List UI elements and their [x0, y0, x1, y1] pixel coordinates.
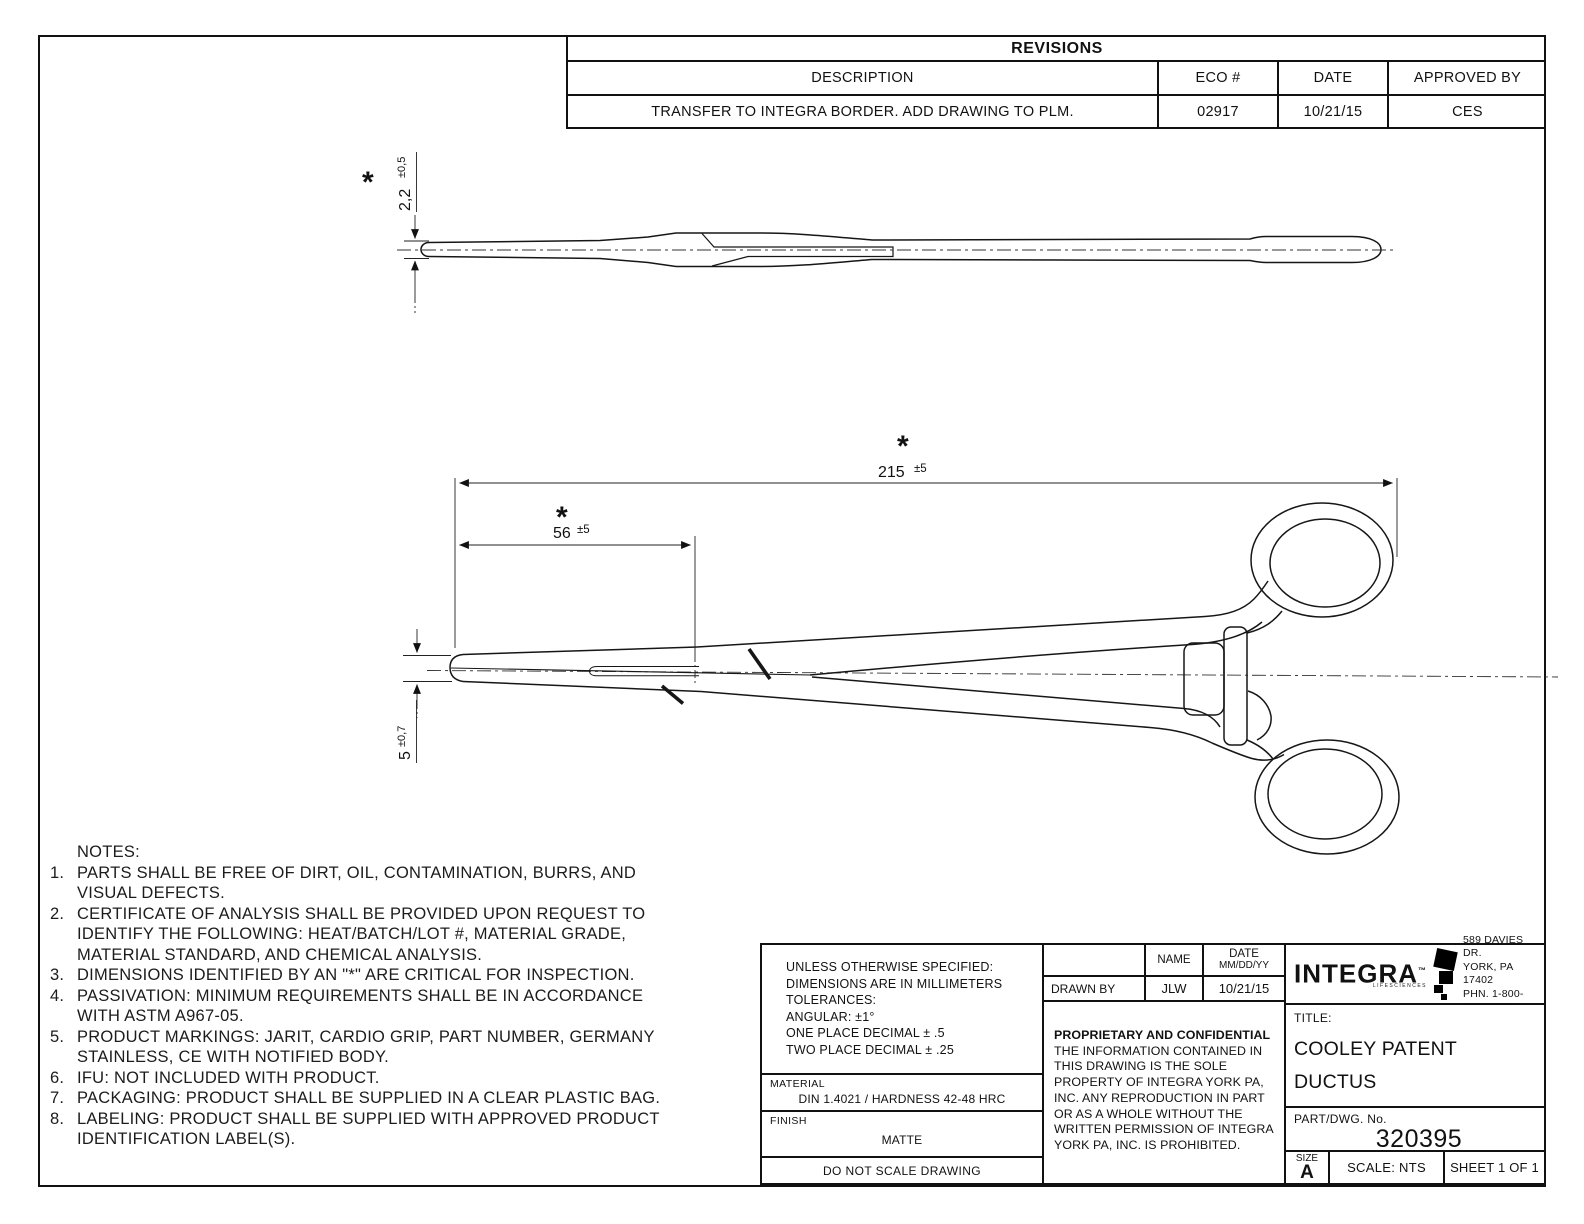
shank-upper-outer [697, 581, 1268, 647]
dim-overall-tol: ±5 [914, 463, 927, 475]
proprietary-heading: PROPRIETARY AND CONFIDENTIAL [1054, 1028, 1278, 1044]
notes-block: NOTES:1.PARTS SHALL BE FREE OF DIRT, OIL… [50, 842, 710, 1150]
plan-view [450, 503, 1399, 854]
integra-logo-mark [1429, 946, 1463, 1002]
size-cell: SIZE A [1286, 1152, 1330, 1183]
drawn-by-date: 10/21/15 [1204, 977, 1286, 1002]
company-address: 589 DAVIES DR.YORK, PA 17402PHN. 1-800-6… [1463, 934, 1544, 1015]
jaw-seam [451, 668, 810, 675]
dim-jaw-length-tol: ±5 [577, 524, 590, 536]
ratchet-hook [1248, 691, 1271, 740]
title-cell: TITLE: COOLEY PATENT DUCTUSCLAMP, 8-1/2"… [1286, 1005, 1544, 1108]
integra-logo: INTEGRA™ [1294, 959, 1427, 986]
finish-value: MATTE [762, 1133, 1042, 1147]
drawn-by-label: DRAWN BY [1044, 977, 1146, 1002]
lower-ring-outer [1255, 740, 1399, 854]
lower-ring-inner [1268, 749, 1382, 839]
upper-bow-1 [1192, 622, 1262, 645]
sign-date-header: DATE MM/DD/YY [1204, 945, 1286, 977]
dim-thickness-value: 2,2 [397, 189, 414, 211]
date-format-text: MM/DD/YY [1219, 960, 1269, 972]
lower-bow-2 [1247, 740, 1273, 759]
title-label: TITLE: [1294, 1011, 1544, 1025]
shank-lower-inner [812, 677, 1184, 709]
dim-thickness-tol: ±0,5 [396, 157, 408, 178]
size-value: A [1300, 1164, 1314, 1181]
date-header-text: DATE [1229, 948, 1259, 960]
shank-upper-inner [810, 645, 1192, 676]
part-number: 320395 [1294, 1125, 1544, 1154]
dim-thickness-star: * [362, 166, 374, 199]
jaw-break-mark-lower [662, 686, 683, 704]
sign-empty-cell [1044, 945, 1146, 977]
material-label: MATERIAL [762, 1075, 1042, 1090]
plan-dim-lines [403, 478, 1397, 763]
drawn-by-name: JLW [1146, 977, 1204, 1002]
title-block: UNLESS OTHERWISE SPECIFIED:DIMENSIONS AR… [760, 943, 1546, 1185]
sign-name-header: NAME [1146, 945, 1204, 977]
material-cell: MATERIAL DIN 1.4021 / HARDNESS 42-48 HRC [762, 1075, 1044, 1112]
sheet-cell: SHEET 1 OF 1 [1445, 1152, 1544, 1183]
jaw-top-edge [463, 647, 697, 655]
do-not-scale-cell: DO NOT SCALE DRAWING [762, 1158, 1044, 1183]
ratchet-bar [1224, 627, 1247, 745]
engineering-drawing-sheet: REVISIONS DESCRIPTION ECO # DATE APPROVE… [0, 0, 1584, 1224]
upper-ring-outer [1251, 503, 1393, 617]
box-joint-plate [1184, 643, 1224, 715]
proprietary-notice: PROPRIETARY AND CONFIDENTIAL THE INFORMA… [1044, 1002, 1286, 1183]
part-label: PART/DWG. No. [1294, 1112, 1544, 1126]
tolerance-block: UNLESS OTHERWISE SPECIFIED:DIMENSIONS AR… [762, 945, 1044, 1075]
trademark-symbol: ™ [1418, 966, 1427, 975]
dim-overall-value: 215 [878, 464, 905, 481]
finish-label: FINISH [762, 1112, 1042, 1127]
shank-lower-outer [701, 692, 1212, 744]
proprietary-body: THE INFORMATION CONTAINED INTHIS DRAWING… [1054, 1044, 1278, 1154]
company-cell: INTEGRA™ LIFESCIENCES 589 DAVIES DR.YORK… [1286, 945, 1544, 1005]
lower-bow-1 [1212, 743, 1284, 760]
material-value: DIN 1.4021 / HARDNESS 42-48 HRC [762, 1092, 1042, 1106]
dim-jaw-length-value: 56 [553, 525, 571, 542]
part-number-cell: PART/DWG. No. 320395 [1286, 1108, 1544, 1152]
upper-ring-inner [1270, 519, 1380, 607]
finish-cell: FINISH MATTE [762, 1112, 1044, 1158]
lower-inner-bow [1184, 709, 1220, 728]
scale-cell: SCALE: NTS [1330, 1152, 1445, 1183]
dim-overall-star: * [897, 430, 909, 463]
dim-jaw-width-value: 5 [397, 751, 414, 760]
dim-jaw-width-tol: ±0,7 [396, 726, 408, 747]
